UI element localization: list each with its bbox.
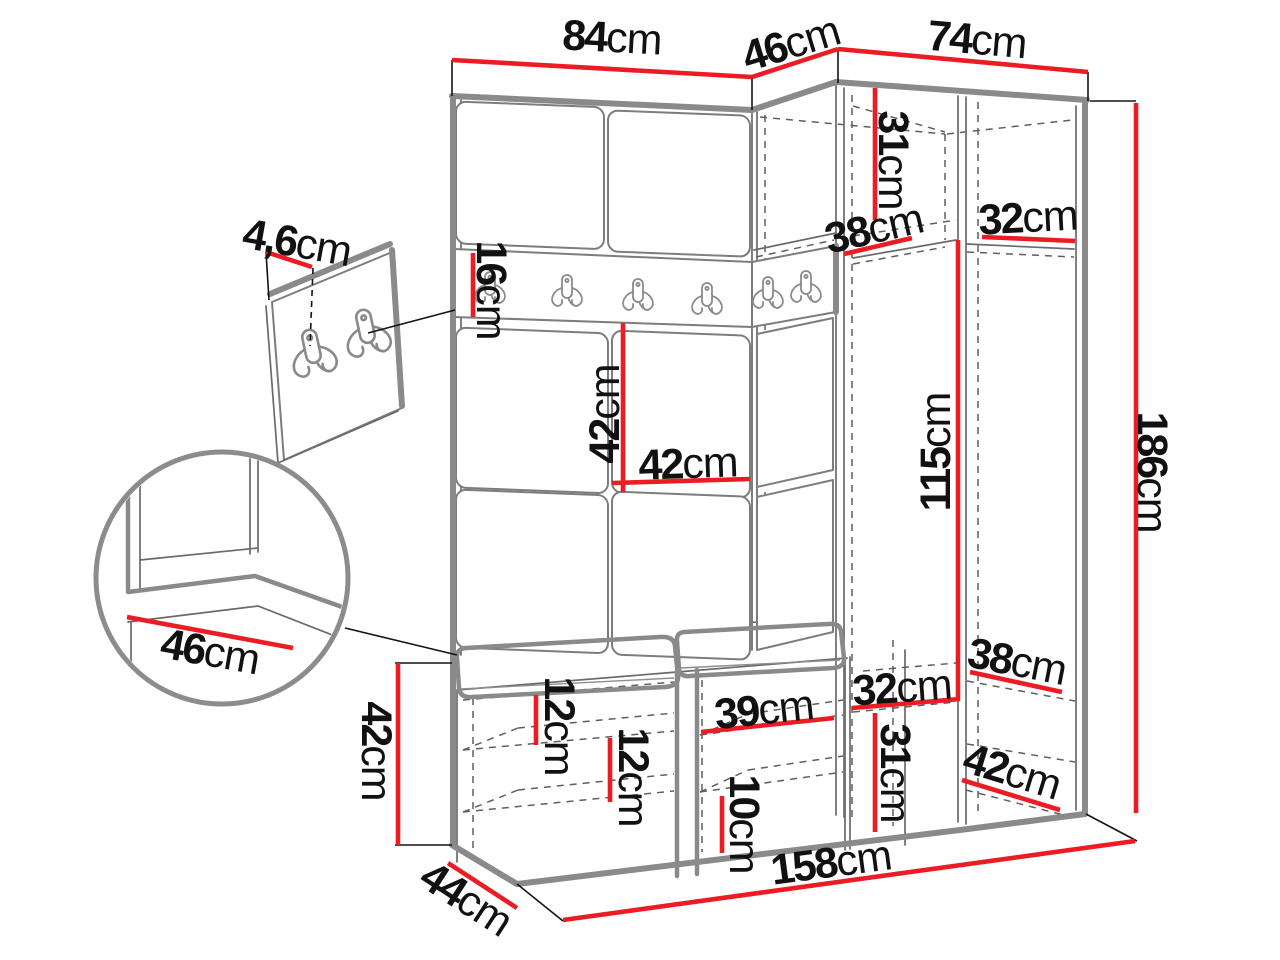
dimension-label-open-section-height: 115cm <box>912 393 960 512</box>
dimension-label-bench-gap-lower: 10cm <box>720 774 768 873</box>
dimension-label-top-shelf-width-right: 32cm <box>977 191 1079 244</box>
wall-panel <box>456 490 608 654</box>
dimension-label-width-right-section: 74cm <box>926 12 1029 68</box>
dimension-label-bottom-corner-width: 32cm <box>851 661 953 716</box>
dimension-label-wall-panel-height: 42cm <box>581 364 629 463</box>
dimension-label-hook-rail-height: 16cm <box>467 240 515 339</box>
furniture-dimension-diagram: 84cm 46cm 74cm 31cm 38cm 32cm 16cm 42cm … <box>0 0 1280 960</box>
dimension-label-bottom-corner-height: 31cm <box>871 723 919 822</box>
dimension-label-bench-shelf-width: 39cm <box>712 681 816 739</box>
dimension-label-width-corner-section: 46cm <box>737 7 846 82</box>
top-cabinet-door <box>608 110 750 256</box>
detail-circle-bench-corner <box>96 452 348 742</box>
dimension-label-top-cabinet-height: 31cm <box>869 110 917 209</box>
dimension-label-width-left-section: 84cm <box>561 11 663 64</box>
dimension-label-bottom-shelf-depth: 38cm <box>964 629 1071 695</box>
dimension-line-width-left-section <box>452 60 752 77</box>
dimension-label-bench-gap-upper: 12cm <box>535 676 583 775</box>
dimension-label-wall-panel-width: 42cm <box>638 438 739 489</box>
callout-pointer-line <box>345 628 457 655</box>
corner-wall-panels <box>757 318 833 650</box>
dimension-label-bench-gap-middle: 12cm <box>609 727 657 826</box>
dimension-label-bench-depth: 44cm <box>411 852 520 946</box>
wall-panel <box>757 318 833 487</box>
top-cabinet-door <box>456 102 604 250</box>
dimension-label-hook-board-thickness: 4,6cm <box>239 210 355 276</box>
dimension-label-bottom-shelf-depth-right: 42cm <box>958 735 1067 810</box>
detail-hook-board <box>266 244 455 463</box>
dimension-label-total-width: 158cm <box>768 831 894 894</box>
dimension-label-bench-height: 42cm <box>352 701 400 800</box>
dimension-label-total-height: 186cm <box>1128 411 1176 532</box>
